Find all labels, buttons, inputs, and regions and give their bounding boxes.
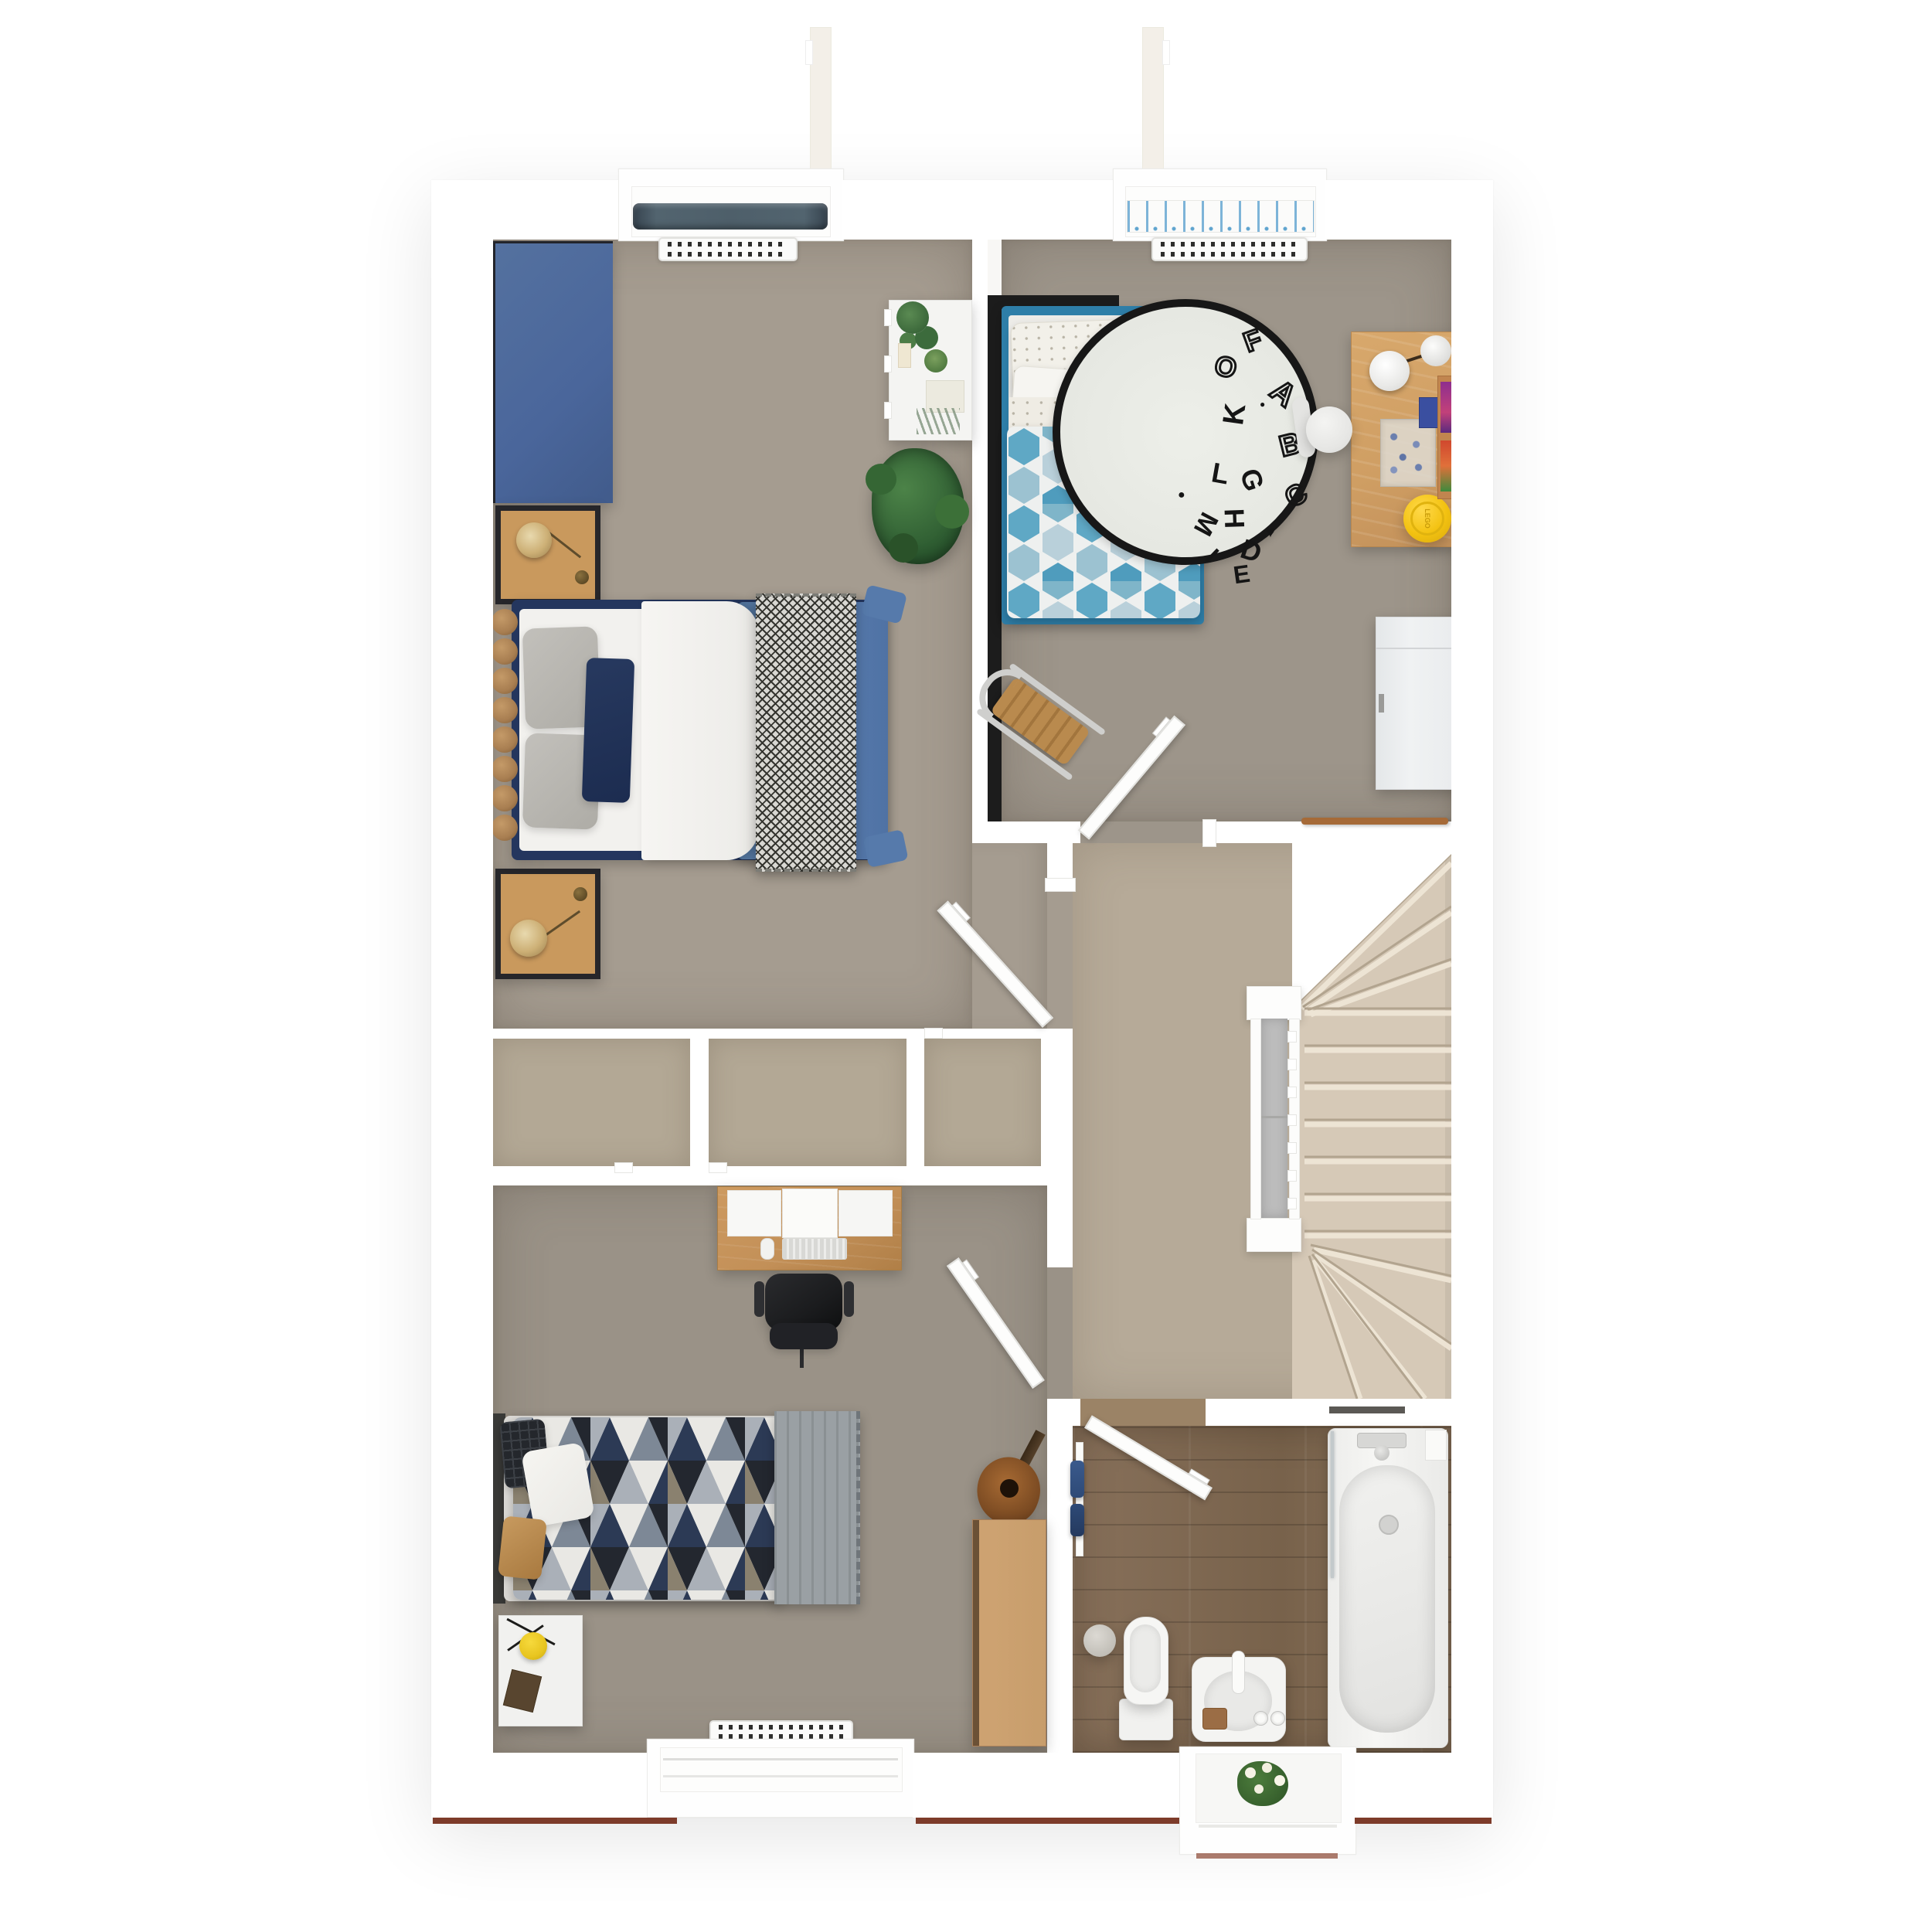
brass-lamp-shade-top — [516, 522, 552, 558]
wall-cupboard-top — [493, 1029, 1073, 1039]
rug-letter: O — [1212, 351, 1240, 383]
master-headboard-roll-4 — [492, 697, 518, 723]
banister-baluster-7 — [1287, 1198, 1297, 1209]
master-throw-herringbone — [756, 594, 856, 872]
bed3-yellow-bowl — [519, 1632, 547, 1660]
brick-sill-left — [433, 1818, 677, 1824]
cupboard-a-floor — [493, 1039, 690, 1166]
banister-newel-bottom — [1247, 1218, 1301, 1252]
kids-radiator — [1151, 237, 1308, 261]
master-nightstand-bottom — [495, 869, 600, 979]
wall-kids-black-vertical — [988, 295, 1002, 821]
exterior-wall-bottom-left — [431, 1753, 647, 1818]
exterior-wall-right — [1451, 180, 1493, 1818]
bathroom-window-bay — [1179, 1747, 1356, 1855]
guitar-soundhole — [1000, 1479, 1019, 1498]
banister-baluster-5 — [1287, 1142, 1297, 1154]
rug-letter: K — [1219, 402, 1250, 427]
cupboard-b-floor — [709, 1039, 906, 1166]
kids-chest-handle — [1379, 694, 1384, 713]
jamb-tab-cupboard-2 — [709, 1162, 727, 1173]
master-headboard-roll-2 — [492, 638, 518, 665]
banister-rail-left — [1250, 1019, 1261, 1219]
kids-window-curtain — [1127, 200, 1315, 233]
bed3-desk-paper-2 — [782, 1189, 838, 1238]
master-duvet-white — [641, 601, 759, 860]
banister-baluster-4 — [1287, 1114, 1297, 1126]
bathtub-shelf — [1425, 1430, 1447, 1461]
bathroom-window-sill-line — [1199, 1825, 1337, 1828]
floor-plan-scene: FOAKBLGCHMDIE♥●● LEGO — [0, 0, 1932, 1932]
bathtub-inner — [1339, 1465, 1435, 1733]
monstera-leaf-accent-1 — [866, 464, 896, 495]
washbasin-faucet — [1232, 1651, 1245, 1694]
bed3-keyboard — [782, 1238, 847, 1260]
banister-panel-seam — [1261, 1116, 1287, 1118]
master-window-bay — [618, 168, 844, 241]
bed3-desk-paper-1 — [727, 1190, 781, 1236]
wall-cupboard-bottom — [493, 1166, 1073, 1185]
master-radiator — [658, 237, 798, 261]
bed3-window-bay — [647, 1739, 914, 1818]
console-candle — [898, 343, 911, 368]
wall-master-kids — [972, 238, 988, 821]
soap-dish — [1202, 1708, 1227, 1730]
banister-baluster-3 — [1287, 1087, 1297, 1098]
bed3-window-frame-line-2 — [663, 1775, 898, 1777]
bed3-desk-paper-3 — [838, 1190, 893, 1236]
jamb-tab-cupboard-3 — [924, 1028, 943, 1039]
office-chair-armrest-right — [844, 1281, 854, 1317]
wall-bath-top-jamb — [1073, 1399, 1080, 1426]
washbasin-knob-1 — [1253, 1711, 1268, 1726]
washbasin-knob-2 — [1270, 1711, 1285, 1726]
rug-letter: M — [1189, 509, 1223, 540]
console-handle-3 — [884, 402, 892, 419]
bed3-throw-grey — [774, 1411, 860, 1604]
brass-lamp-ball-bottom — [573, 887, 587, 901]
banister-baluster-2 — [1287, 1059, 1297, 1070]
kids-chair-seat — [1306, 406, 1352, 453]
console-handle-2 — [884, 355, 892, 372]
master-headboard-roll-7 — [492, 785, 518, 811]
jamb-tab-master-door — [1045, 878, 1076, 892]
rug-letter: E — [1232, 561, 1252, 588]
console-succulent — [924, 349, 947, 372]
kids-desk-lamp-shade — [1369, 351, 1410, 391]
master-headboard-roll-1 — [492, 609, 518, 635]
banister-baluster-6 — [1287, 1170, 1297, 1182]
exterior-wall-top-mid — [842, 180, 1113, 240]
wall-cupboard-divider-2 — [906, 1039, 924, 1166]
chimney-notch-left — [805, 40, 813, 65]
bed3-pillow-tan — [498, 1515, 547, 1580]
exterior-wall-left — [431, 180, 493, 1818]
exterior-wall-bottom-right — [1355, 1753, 1493, 1818]
jamb-tab-cupboard-1 — [614, 1162, 633, 1173]
banister-panel — [1261, 1019, 1287, 1218]
brass-lamp-ball-top — [575, 570, 589, 584]
exterior-wall-bottom-mid — [913, 1753, 1179, 1818]
rug-letter: H — [1220, 508, 1249, 529]
console-vine-plant — [896, 301, 929, 334]
wall-kids-landing-right — [1207, 821, 1451, 843]
bed3-window-frame-line-1 — [663, 1758, 898, 1760]
threshold-bed3 — [1047, 1267, 1073, 1399]
master-window-curtain — [633, 203, 828, 230]
bed3-window-recess — [660, 1747, 903, 1792]
bed3-pillow-white — [521, 1442, 595, 1527]
rug-letter: F — [1240, 325, 1266, 356]
wall-kids-landing-left — [972, 821, 1080, 843]
master-headboard-roll-3 — [492, 668, 518, 694]
wall-bath-left — [1047, 1399, 1073, 1753]
brick-sill-mid — [916, 1818, 1179, 1824]
wall-cupboard-divider-1 — [690, 1039, 709, 1166]
master-headboard-roll-5 — [492, 726, 518, 753]
rug-letter: ● — [1260, 400, 1265, 409]
kids-window-bay — [1113, 168, 1327, 241]
wall-cupboard-right — [1041, 1039, 1073, 1166]
jamb-tab-kids-door — [1202, 819, 1216, 847]
chimney-notch-right — [1162, 40, 1170, 65]
kids-letter-cubes — [1385, 427, 1430, 478]
banister-baluster-1 — [1287, 1031, 1297, 1043]
master-nightstand-top — [495, 505, 600, 604]
toilet-tank — [1119, 1699, 1173, 1740]
brick-sill-right — [1355, 1818, 1492, 1824]
brass-lamp-shade-bottom — [510, 920, 547, 957]
wall-landing-bed3-upper — [1047, 1185, 1073, 1267]
rug-letter: G — [1236, 465, 1269, 495]
lego-jar-inner-ring: LEGO — [1410, 502, 1444, 536]
wall-bath-top — [1206, 1399, 1451, 1426]
kids-desk-lamp-base — [1420, 335, 1451, 366]
console-eucalyptus — [917, 408, 960, 434]
flower-bloom-2 — [1262, 1763, 1272, 1773]
flower-bloom-4 — [1254, 1784, 1264, 1794]
bathroom-bin — [1083, 1624, 1116, 1657]
bathtub-shower-head — [1374, 1445, 1389, 1461]
monstera-leaf-accent-3 — [889, 533, 918, 563]
office-chair-backrest — [770, 1323, 838, 1349]
console-handle-1 — [884, 309, 892, 326]
flower-bloom-1 — [1245, 1767, 1256, 1778]
towel-blue-2 — [1070, 1504, 1084, 1536]
lego-storage-jar: LEGO — [1403, 495, 1451, 543]
rug-letter: L — [1209, 458, 1231, 488]
staircase — [1292, 843, 1451, 1399]
rug-letter: ● — [1178, 489, 1185, 502]
stair-threshold-shadow — [1329, 1406, 1405, 1413]
kids-chest-seam — [1376, 648, 1459, 649]
master-headboard-roll-6 — [492, 756, 518, 782]
banister-newel-top — [1247, 986, 1301, 1020]
stair-handrail — [1301, 818, 1448, 825]
threshold-master — [1047, 889, 1073, 1029]
bathtub-drain — [1379, 1515, 1399, 1535]
cupboard-c-floor — [924, 1039, 1041, 1166]
kids-drawer-chest — [1376, 617, 1461, 790]
towel-blue-1 — [1070, 1461, 1084, 1498]
brick-sill-bay — [1196, 1853, 1338, 1859]
shower-screen — [1331, 1431, 1334, 1578]
flower-bloom-3 — [1274, 1775, 1285, 1786]
rug-letter: ♥ — [1266, 525, 1275, 540]
office-chair-seat — [765, 1274, 842, 1331]
towel-rail — [1076, 1442, 1083, 1556]
office-chair-armrest-left — [754, 1281, 764, 1317]
lego-jar-label: LEGO — [1423, 509, 1431, 529]
master-headboard-roll-8 — [492, 815, 518, 841]
monstera-leaf-accent-2 — [935, 495, 969, 529]
master-pillow-navy — [582, 658, 634, 803]
alphabet-rug: FOAKBLGCHMDIE♥●● — [1053, 299, 1318, 565]
bed3-mouse — [760, 1238, 774, 1260]
master-wardrobe — [493, 241, 613, 503]
bed3-cabinet — [972, 1519, 1046, 1747]
toilet-seat-inner — [1130, 1624, 1161, 1692]
